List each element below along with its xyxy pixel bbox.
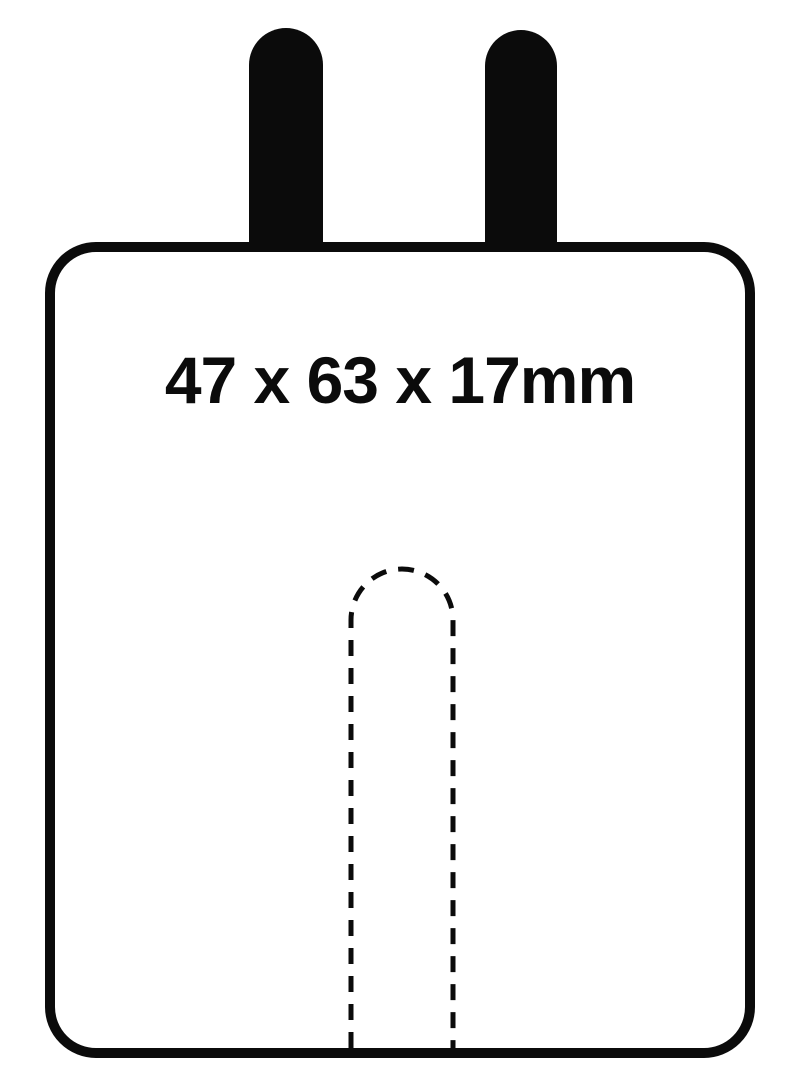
right-mounting-tab: [485, 30, 557, 252]
brake-pad-diagram-canvas: 47 x 63 x 17mm: [0, 0, 800, 1087]
brake-pad-diagram: 47 x 63 x 17mm: [0, 0, 800, 1087]
dimension-label: 47 x 63 x 17mm: [165, 343, 635, 417]
left-mounting-tab: [249, 28, 323, 252]
